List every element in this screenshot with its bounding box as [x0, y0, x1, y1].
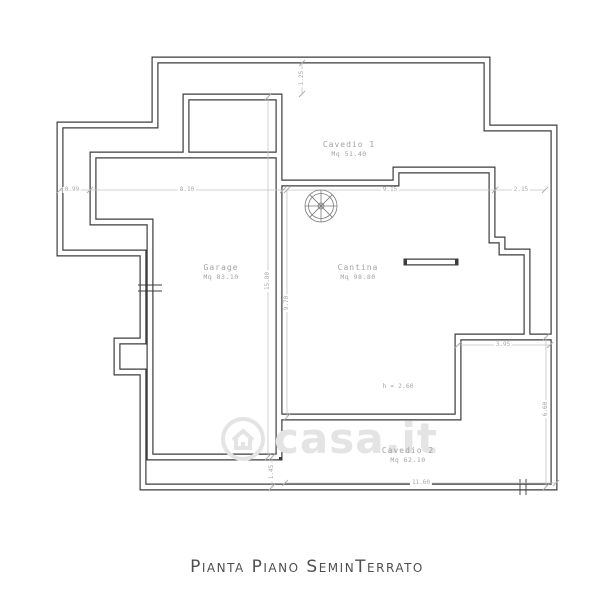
room-name: Cantina	[338, 263, 379, 273]
room-label-garage: Garage Mq 83.10	[203, 263, 238, 281]
room-label-cavedio-1: Cavedio 1 Mq 51.40	[323, 140, 375, 158]
floor-plan-drawing	[0, 0, 614, 600]
wall-cores	[60, 60, 554, 487]
garage-left-and-bottom-wall	[93, 155, 279, 457]
dimension-label: 6.60	[543, 400, 549, 418]
room-area: Mq 51.40	[323, 150, 375, 158]
height-note: h = 2.60	[382, 382, 413, 390]
room-name: Cavedio 2	[382, 446, 434, 456]
room-area: Mq 83.10	[203, 273, 238, 281]
room-label-cantina: Cantina Mq 98.80	[338, 263, 379, 281]
plan-title: Pianta Piano SeminTerrato	[190, 557, 424, 577]
dimension-label: 1.25	[299, 69, 305, 87]
compass-rosette-icon	[305, 190, 337, 222]
dimension-label: 1.45	[269, 463, 275, 481]
cantina-bottom-wall	[279, 337, 552, 417]
dimension-label: 15.80	[265, 270, 271, 292]
room-name: Cavedio 1	[323, 140, 375, 150]
dimension-label: 9.15	[381, 187, 399, 193]
floor-plan-page: casa.it Cavedio 1 Mq 51.40 Garage Mq 83.…	[0, 0, 614, 600]
dimension-label: 0.99	[63, 187, 81, 193]
dimension-label: 3.95	[494, 342, 512, 348]
dimension-label: 2.15	[512, 187, 530, 193]
room-area: Mq 98.80	[338, 273, 379, 281]
wall-break-ticks	[138, 285, 526, 495]
room-name: Garage	[203, 263, 238, 273]
dimension-label: 9.70	[284, 294, 290, 312]
dimension-label: 11.60	[410, 480, 432, 486]
dimension-label: 8.10	[178, 187, 196, 193]
room-label-cavedio-2: Cavedio 2 Mq 62.10	[382, 446, 434, 464]
room-area: Mq 62.10	[382, 456, 434, 464]
